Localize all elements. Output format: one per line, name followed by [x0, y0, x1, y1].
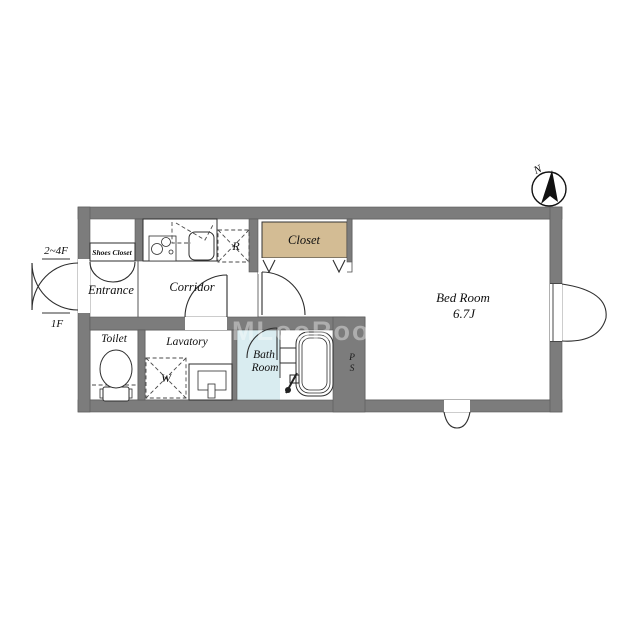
watermark-text: MLooRooM — [232, 316, 395, 346]
entry-door-swing-lower — [32, 263, 78, 310]
bath-shelf — [280, 348, 296, 363]
right-window-opening — [550, 283, 562, 342]
toilet-bowl — [100, 350, 132, 388]
washer-label: W — [161, 371, 172, 385]
vanity-faucet-icon — [208, 384, 215, 398]
corridor-label: Corridor — [169, 280, 214, 294]
floor-plan: N Shoes Closet Entrance Corridor Closet … — [0, 0, 640, 640]
wall-bottom — [78, 400, 562, 412]
compass: N — [531, 163, 566, 206]
stove-burner-icon — [162, 238, 171, 247]
corridor-door-opening — [185, 317, 227, 330]
kitchen-sink — [189, 232, 214, 260]
pipe-space-label-p: P — [348, 353, 355, 363]
bedroom-label: Bed Room — [436, 290, 490, 305]
stove-burner-icon — [152, 244, 163, 255]
toilet-base — [103, 387, 129, 401]
floor-label-upper: 2~4F — [44, 245, 68, 257]
shower-head-icon — [285, 387, 291, 393]
bedroom-size-label: 6.7J — [453, 306, 476, 321]
pipe-space-label-s: S — [350, 364, 355, 374]
entrance-label: Entrance — [87, 283, 134, 297]
stove-knob-icon — [169, 250, 173, 254]
bottom-window-opening — [444, 400, 470, 412]
bottom-window-swing-left — [444, 412, 457, 428]
bottom-window-swing-right — [457, 412, 470, 428]
lavatory-label: Lavatory — [165, 336, 208, 348]
right-window-swing-top — [562, 284, 606, 318]
closet-label: Closet — [288, 233, 320, 247]
wall-corridor-bedroom — [249, 219, 258, 272]
refrigerator-label: R — [231, 239, 240, 253]
bath-label-line1: Bath — [253, 349, 275, 361]
right-window-swing-bottom — [562, 318, 606, 341]
toilet-label: Toilet — [101, 333, 128, 345]
entry-door-swing-upper — [32, 263, 78, 310]
floor-label-lower: 1F — [51, 318, 64, 330]
wall-entrance-kitchen — [135, 219, 143, 261]
shoes-closet-label: Shoes Closet — [92, 248, 132, 257]
bath-label-line2: Room — [251, 362, 279, 374]
wall-top — [78, 207, 562, 219]
wall-closet-right — [347, 219, 352, 262]
wall-toilet-lavatory — [138, 330, 145, 400]
